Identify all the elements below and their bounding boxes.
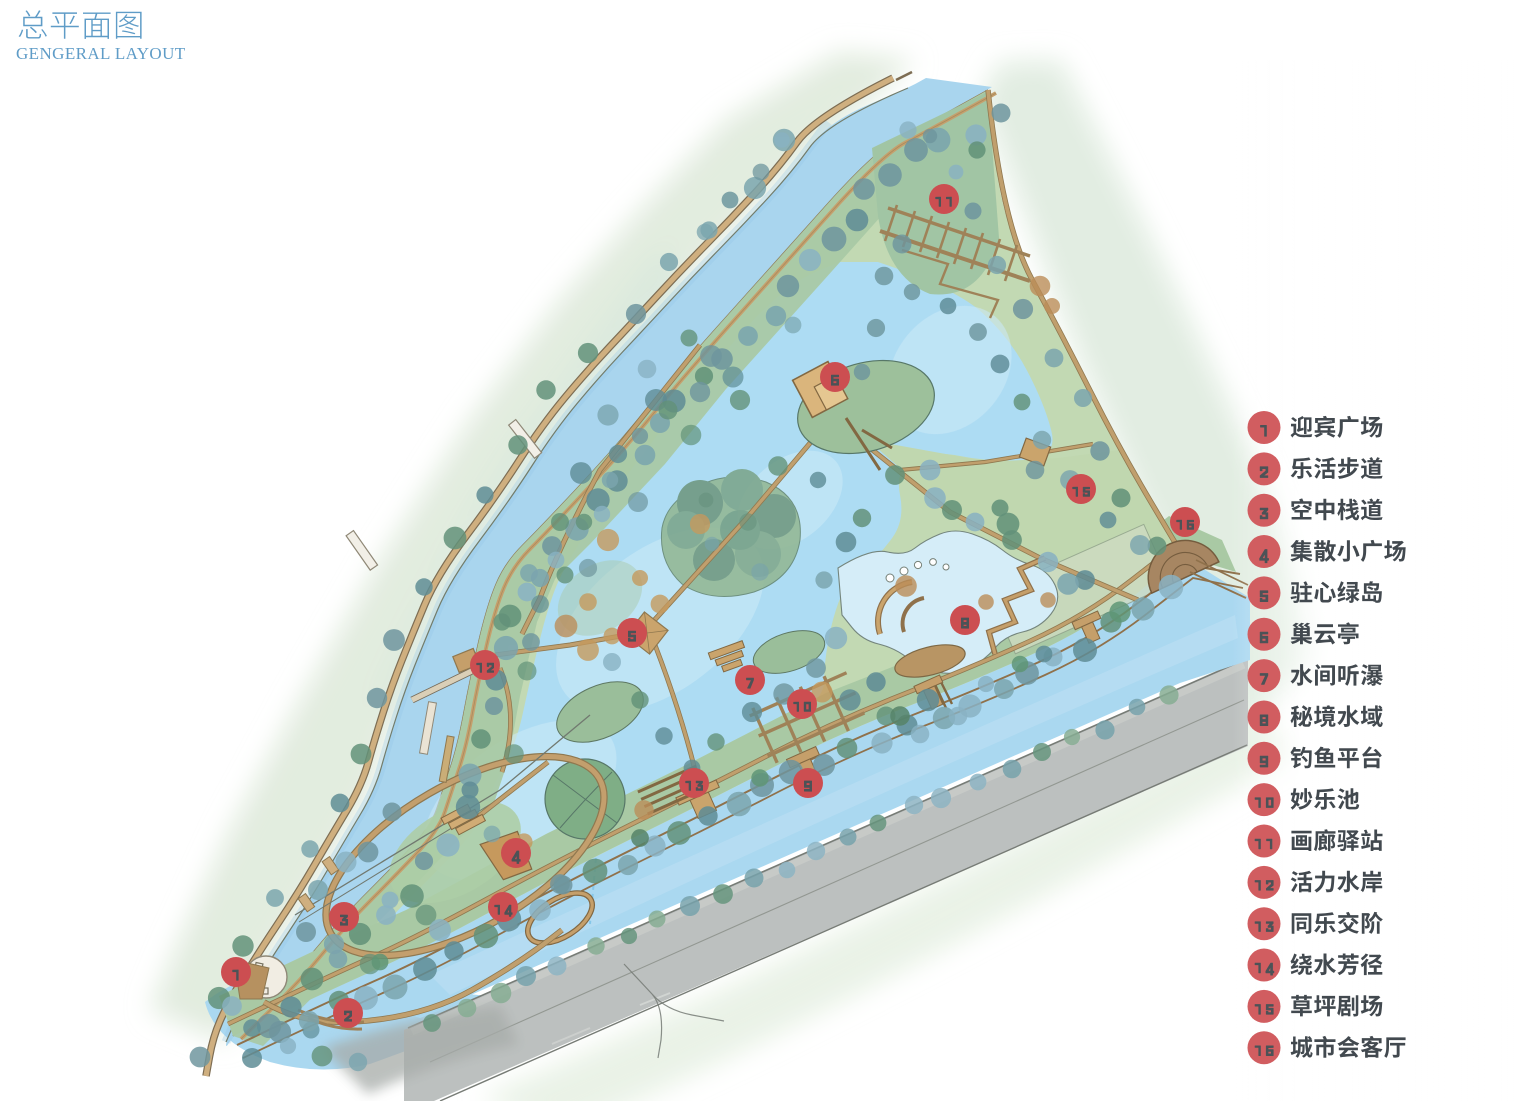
svg-text:GENGERAL LAYOUT: GENGERAL LAYOUT [16, 44, 186, 63]
